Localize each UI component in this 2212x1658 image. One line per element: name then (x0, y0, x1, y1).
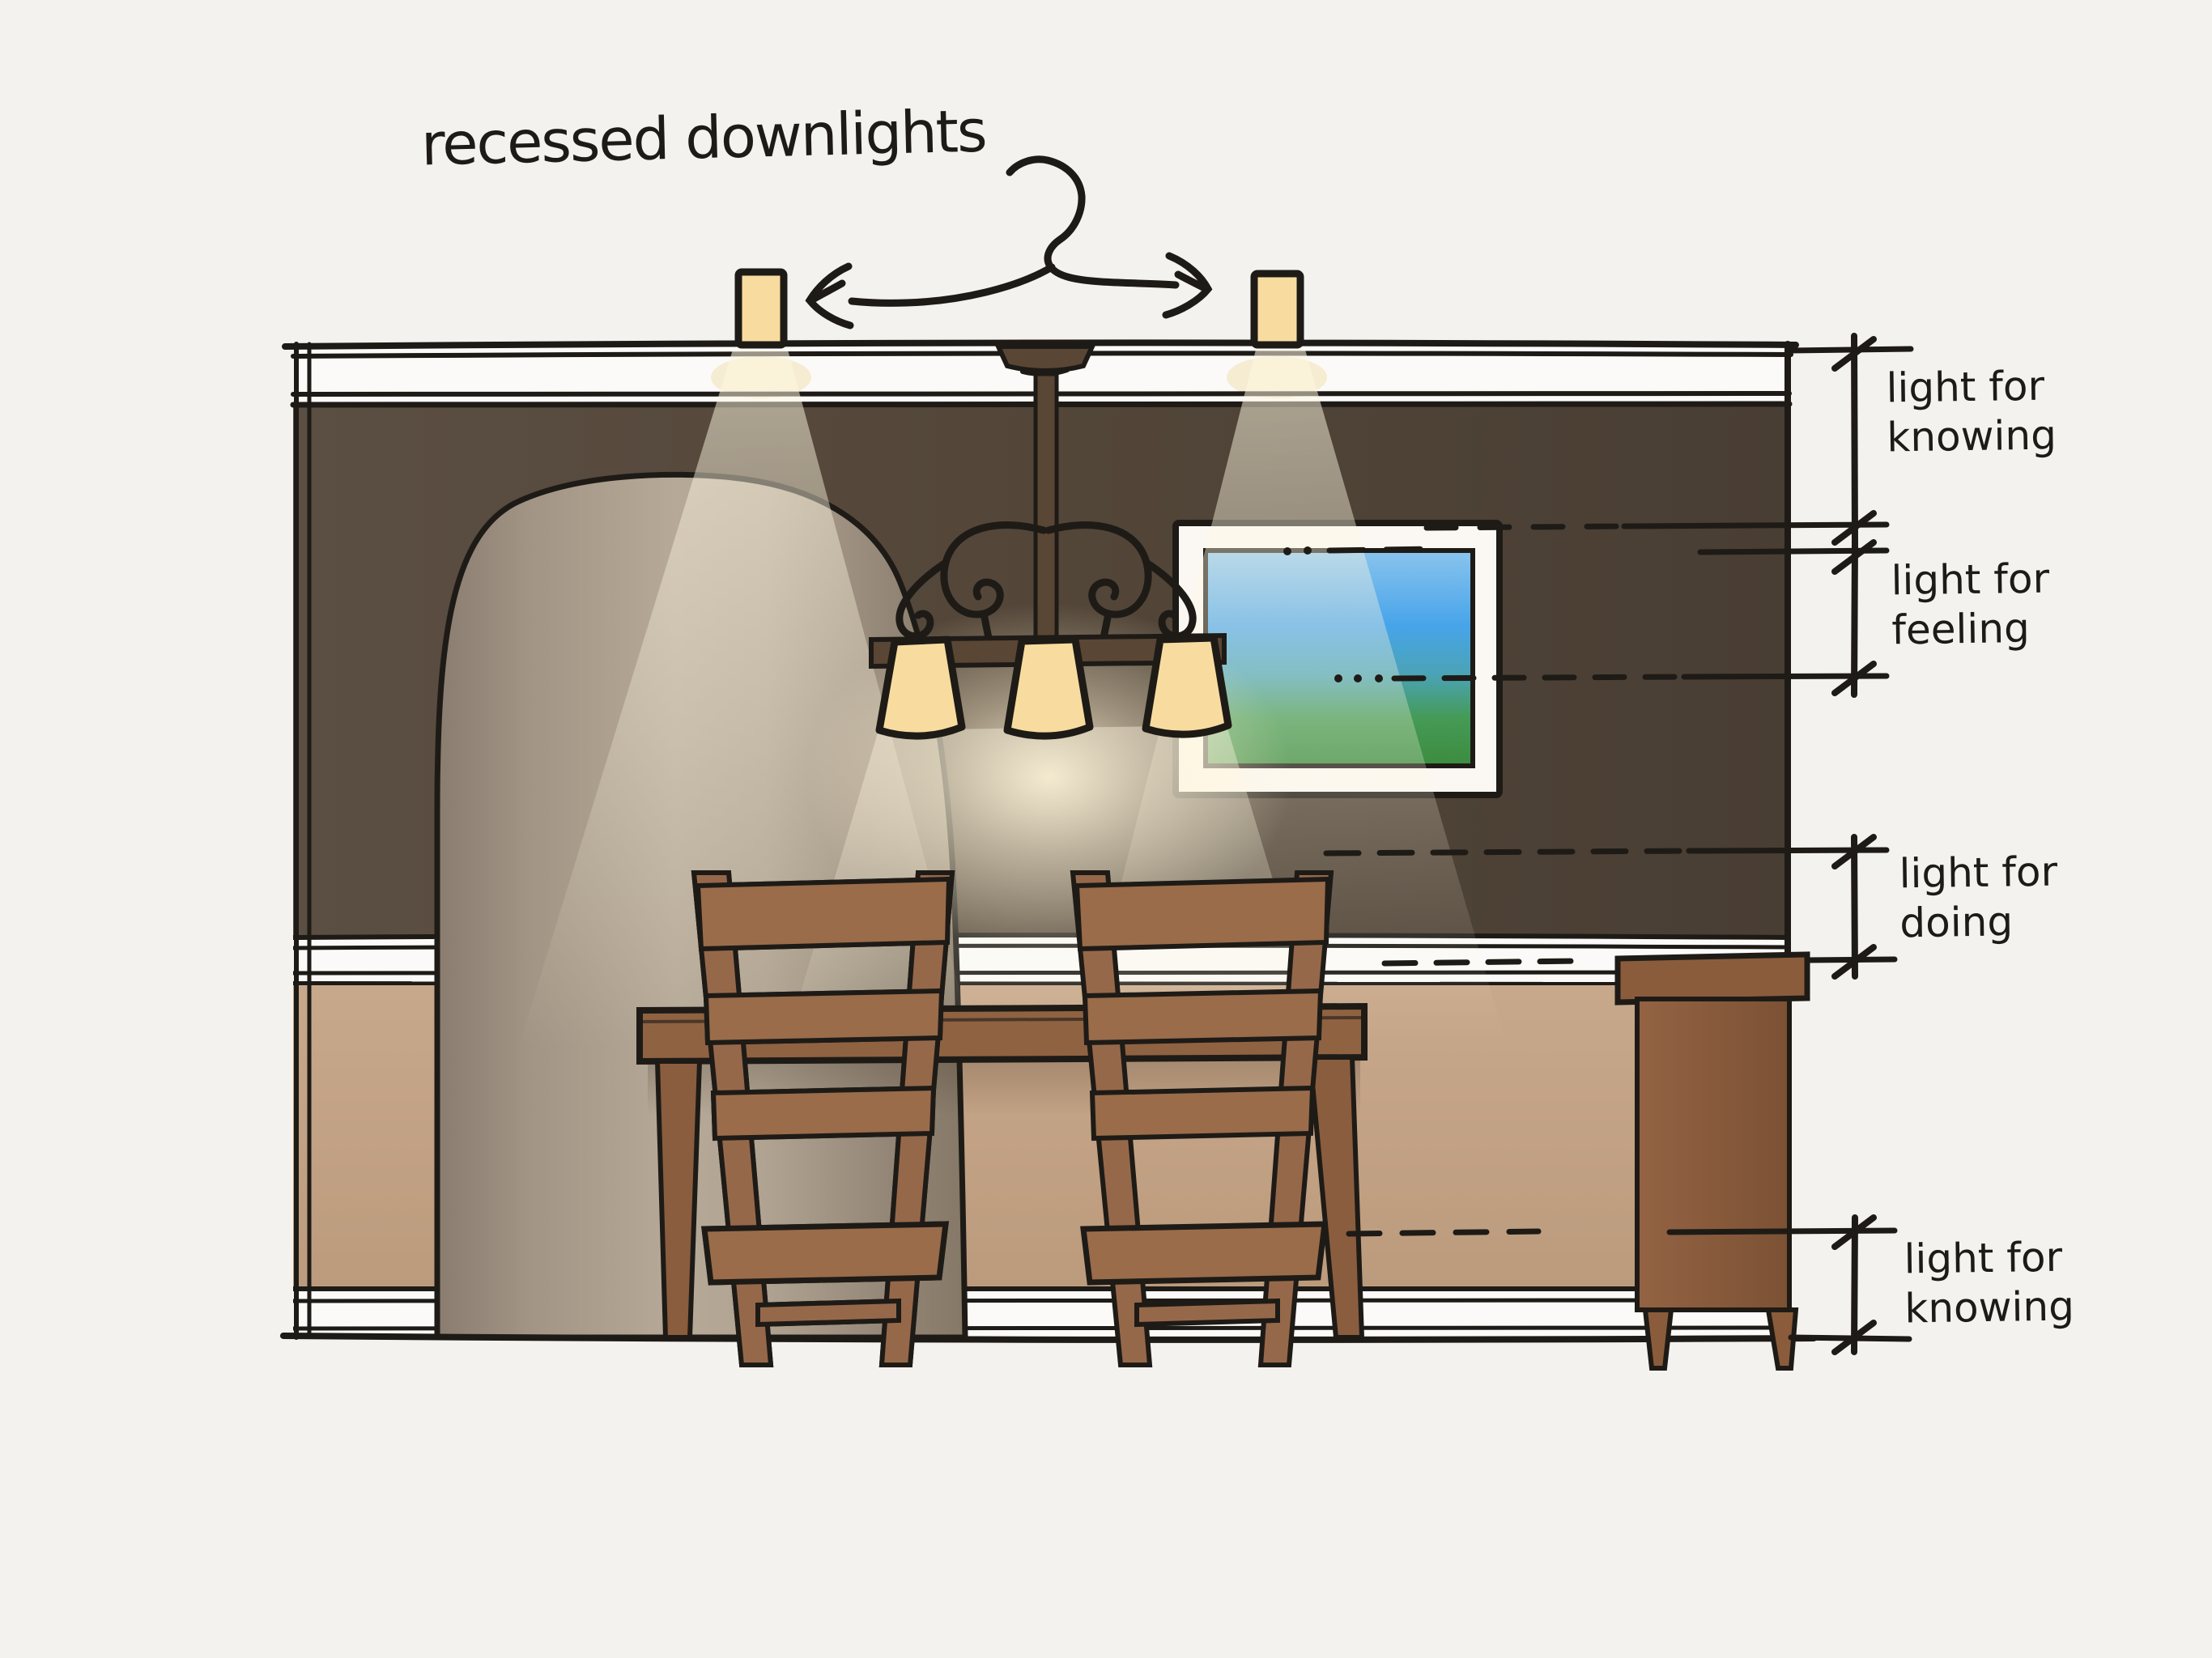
label-line: doing (1899, 898, 2013, 946)
lampshade-left (879, 640, 962, 736)
leader-ceiling (1791, 349, 1911, 351)
sideboard (1618, 954, 1807, 1368)
label-light-for-knowing-bottom: light for knowing (1904, 1233, 2074, 1334)
label-line: light for (1886, 363, 2044, 412)
dimension-line-feeling (1854, 542, 1855, 695)
lampshade-center (1007, 640, 1090, 736)
label-line: light for (1899, 848, 2057, 898)
chandelier-shades (879, 638, 1228, 736)
arrow-branch-left (852, 267, 1052, 303)
sideboard-leg-left (1645, 1310, 1671, 1368)
lampshade-right (1146, 638, 1228, 734)
sideboard-top (1618, 954, 1807, 1002)
dimension-line-doing (1854, 837, 1855, 976)
label-light-for-doing: light for doing (1899, 848, 2058, 949)
recessed-downlight-left (738, 272, 784, 345)
label-line: knowing (1887, 412, 2057, 461)
label-line: light for (1891, 555, 2049, 605)
label-line: light for (1904, 1234, 2062, 1283)
recessed-downlight-right (1254, 274, 1300, 345)
title-recessed-downlights: recessed downlights (420, 96, 986, 178)
annotation-arrow (810, 159, 1208, 325)
table-leg-left (657, 1061, 700, 1337)
label-light-for-feeling: light for feeling (1891, 555, 2050, 656)
label-light-for-knowing-top: light for knowing (1886, 362, 2057, 463)
dimension-line-knowing-bottom (1854, 1218, 1855, 1352)
label-line: feeling (1891, 605, 2030, 653)
chandelier-stem (1036, 374, 1057, 648)
sketch-canvas: recessed downlights light for knowing li… (0, 0, 2212, 1658)
chandelier-canopy (998, 346, 1092, 371)
dimension-line-knowing-top (1854, 336, 1855, 542)
sideboard-body (1637, 999, 1789, 1310)
label-line: knowing (1904, 1283, 2074, 1333)
arrow-stem (1010, 159, 1176, 285)
room-elevation-drawing (0, 0, 2212, 1658)
